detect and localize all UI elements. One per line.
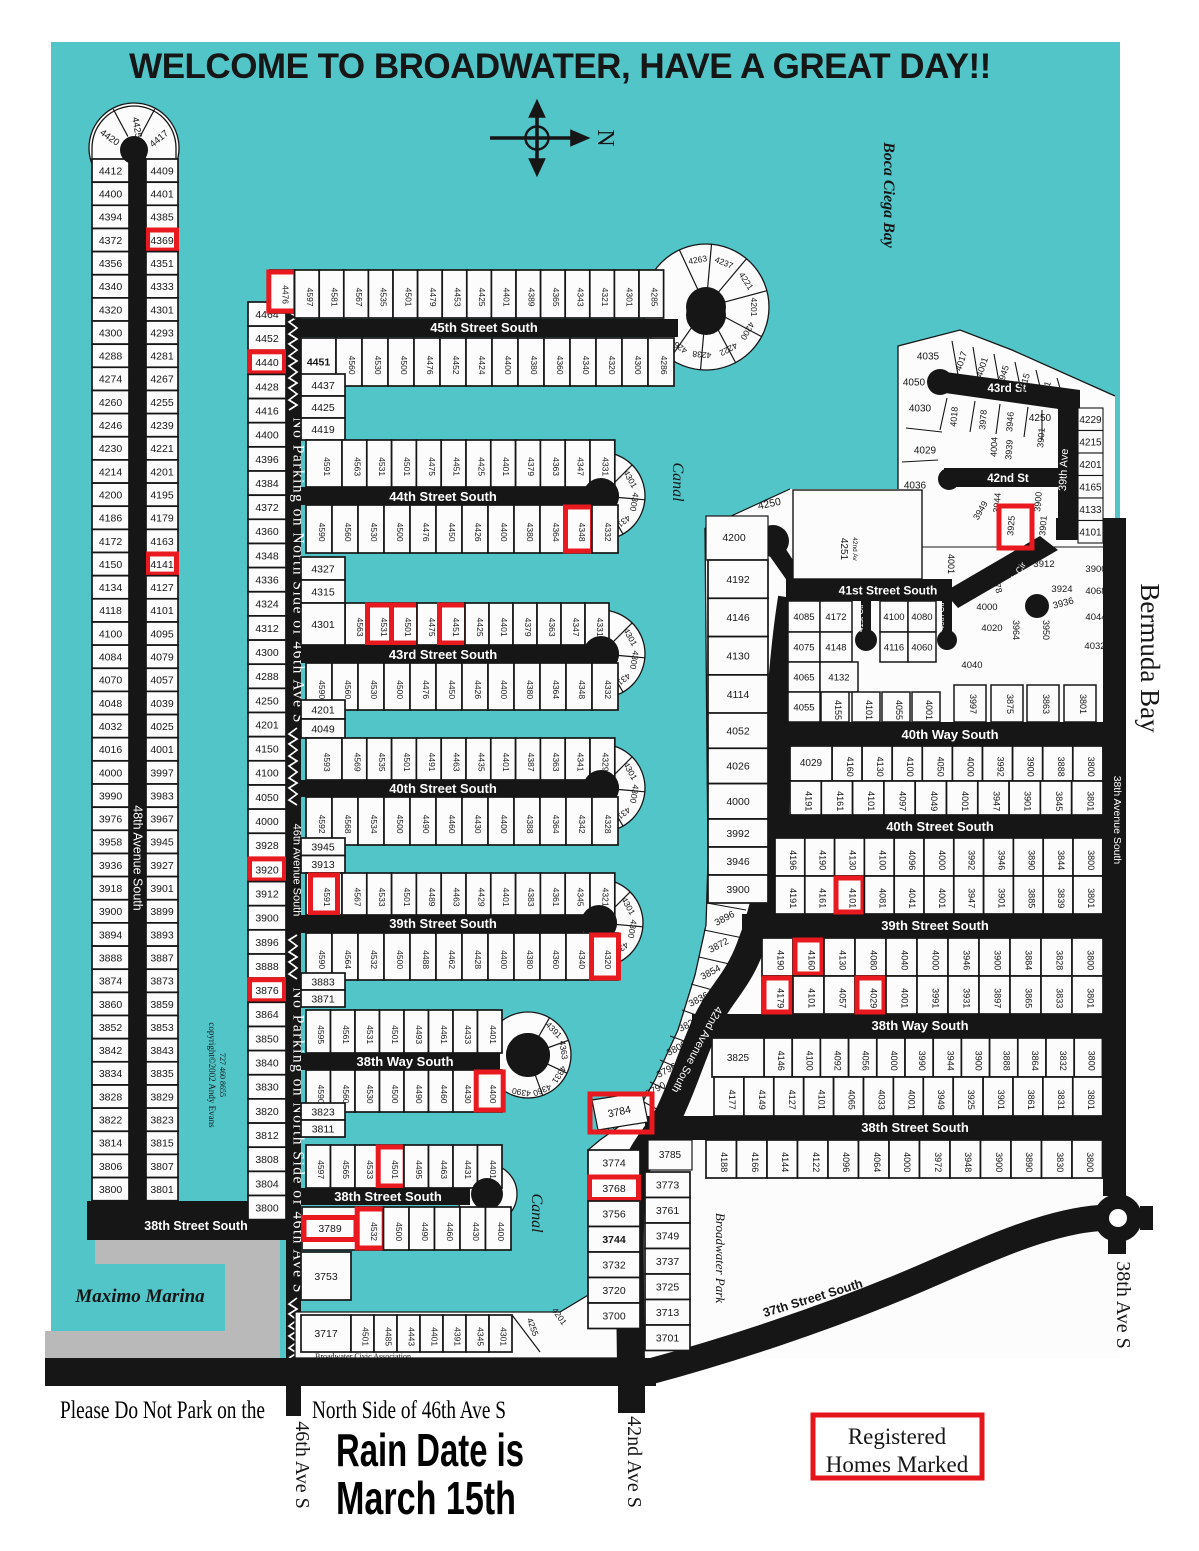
svg-text:3852: 3852 bbox=[99, 1022, 123, 1034]
svg-text:3823: 3823 bbox=[311, 1106, 335, 1118]
svg-text:Canal: Canal bbox=[528, 1193, 545, 1233]
svg-text:4130: 4130 bbox=[726, 651, 750, 663]
svg-text:3900: 3900 bbox=[726, 884, 750, 896]
svg-text:4452: 4452 bbox=[451, 356, 461, 375]
svg-text:4214: 4214 bbox=[99, 466, 123, 478]
svg-text:3992: 3992 bbox=[967, 850, 977, 870]
svg-text:3901: 3901 bbox=[1023, 791, 1033, 811]
svg-text:4476: 4476 bbox=[421, 680, 431, 699]
svg-text:3850: 3850 bbox=[255, 1033, 279, 1045]
svg-text:4425: 4425 bbox=[477, 288, 487, 307]
svg-text:4190: 4190 bbox=[776, 950, 786, 970]
svg-text:4560: 4560 bbox=[343, 523, 353, 542]
svg-text:3823: 3823 bbox=[150, 1115, 174, 1127]
svg-text:4341: 4341 bbox=[576, 753, 586, 772]
svg-text:4049: 4049 bbox=[929, 791, 939, 811]
svg-text:3800: 3800 bbox=[1086, 950, 1096, 970]
svg-text:3900: 3900 bbox=[1026, 757, 1036, 777]
svg-text:3901: 3901 bbox=[1035, 427, 1047, 448]
svg-text:4161: 4161 bbox=[835, 791, 845, 811]
svg-text:4068: 4068 bbox=[1085, 586, 1106, 597]
svg-text:4590: 4590 bbox=[317, 523, 327, 542]
svg-text:4321: 4321 bbox=[600, 888, 610, 907]
svg-text:4246: 4246 bbox=[99, 420, 123, 432]
svg-text:3828: 3828 bbox=[99, 1091, 123, 1103]
svg-text:4342: 4342 bbox=[577, 815, 587, 834]
svg-text:4036: 4036 bbox=[904, 481, 927, 492]
svg-text:3888: 3888 bbox=[99, 953, 123, 965]
svg-text:4450: 4450 bbox=[447, 523, 457, 542]
svg-text:4440: 4440 bbox=[255, 357, 279, 369]
svg-text:3947: 3947 bbox=[967, 888, 977, 908]
svg-text:4425: 4425 bbox=[476, 457, 486, 476]
svg-text:4016: 4016 bbox=[99, 744, 123, 756]
svg-text:3976: 3976 bbox=[99, 814, 123, 826]
svg-text:4238: 4238 bbox=[692, 349, 712, 361]
svg-text:38th Street South: 38th Street South bbox=[861, 1120, 969, 1135]
svg-text:4475: 4475 bbox=[427, 618, 437, 637]
svg-text:3920: 3920 bbox=[255, 864, 279, 876]
svg-text:4535: 4535 bbox=[379, 288, 389, 307]
svg-text:4595: 4595 bbox=[316, 1025, 326, 1044]
svg-text:4100: 4100 bbox=[804, 1051, 814, 1071]
svg-text:4463: 4463 bbox=[452, 753, 462, 772]
svg-text:3801: 3801 bbox=[1078, 694, 1088, 714]
svg-text:4188: 4188 bbox=[719, 1152, 729, 1172]
svg-text:3913: 3913 bbox=[311, 859, 335, 871]
svg-text:4200: 4200 bbox=[722, 532, 746, 544]
svg-text:4592: 4592 bbox=[317, 815, 327, 834]
svg-text:3884: 3884 bbox=[1024, 950, 1034, 970]
svg-text:4020: 4020 bbox=[981, 623, 1002, 634]
svg-text:4530: 4530 bbox=[373, 356, 383, 375]
svg-text:4177: 4177 bbox=[727, 1090, 737, 1110]
svg-text:3946: 3946 bbox=[726, 856, 750, 868]
svg-text:4085: 4085 bbox=[793, 612, 814, 623]
svg-text:3939: 3939 bbox=[1003, 439, 1015, 460]
svg-text:3865: 3865 bbox=[1024, 988, 1034, 1008]
svg-text:Canal: Canal bbox=[669, 462, 686, 502]
svg-text:4443: 4443 bbox=[407, 1327, 417, 1346]
svg-text:4000: 4000 bbox=[255, 816, 279, 828]
svg-text:3801: 3801 bbox=[1086, 1090, 1096, 1110]
svg-text:3737: 3737 bbox=[656, 1256, 680, 1268]
svg-text:4401: 4401 bbox=[501, 457, 511, 476]
svg-text:4400: 4400 bbox=[503, 356, 513, 375]
svg-text:4351: 4351 bbox=[150, 258, 174, 270]
svg-text:3800: 3800 bbox=[1086, 757, 1096, 777]
svg-text:4533: 4533 bbox=[377, 888, 387, 907]
svg-text:3830: 3830 bbox=[255, 1082, 279, 1094]
svg-text:4018: 4018 bbox=[948, 406, 960, 427]
svg-text:3918: 3918 bbox=[99, 883, 123, 895]
svg-text:3945: 3945 bbox=[311, 842, 335, 854]
svg-text:4372: 4372 bbox=[99, 235, 123, 247]
svg-text:4435: 4435 bbox=[476, 753, 486, 772]
svg-text:March 15th: March 15th bbox=[336, 1472, 516, 1524]
svg-text:3897: 3897 bbox=[993, 988, 1003, 1008]
svg-text:4479: 4479 bbox=[428, 288, 438, 307]
svg-text:4288: 4288 bbox=[99, 351, 123, 363]
svg-text:WELCOME TO BROADWATER, HAVE A: WELCOME TO BROADWATER, HAVE A GREAT DAY!… bbox=[129, 47, 991, 86]
svg-text:4347: 4347 bbox=[576, 457, 586, 476]
svg-text:4530: 4530 bbox=[365, 1085, 375, 1104]
svg-text:4285: 4285 bbox=[649, 288, 659, 307]
svg-text:4363: 4363 bbox=[547, 618, 557, 637]
svg-text:3900: 3900 bbox=[99, 906, 123, 918]
svg-text:4200: 4200 bbox=[99, 490, 123, 502]
svg-text:42nd Av: 42nd Av bbox=[851, 537, 858, 561]
svg-text:3801: 3801 bbox=[1086, 888, 1096, 908]
svg-text:4463: 4463 bbox=[439, 1160, 449, 1179]
svg-text:3864: 3864 bbox=[255, 1009, 279, 1021]
svg-text:4057: 4057 bbox=[838, 988, 848, 1008]
svg-text:4274: 4274 bbox=[99, 374, 123, 386]
svg-text:4000: 4000 bbox=[99, 767, 123, 779]
svg-text:4044: 4044 bbox=[1085, 612, 1106, 623]
svg-text:4340: 4340 bbox=[581, 356, 591, 375]
svg-text:4563: 4563 bbox=[355, 618, 365, 637]
svg-text:4560: 4560 bbox=[347, 356, 357, 375]
svg-text:4025: 4025 bbox=[150, 721, 174, 733]
svg-text:3801: 3801 bbox=[150, 1184, 174, 1196]
svg-text:4534: 4534 bbox=[369, 815, 379, 834]
svg-text:4476: 4476 bbox=[425, 356, 435, 375]
svg-text:4000: 4000 bbox=[889, 1051, 899, 1071]
svg-text:4328: 4328 bbox=[603, 815, 613, 834]
svg-text:copyright©2002 Andy Evans: copyright©2002 Andy Evans bbox=[207, 1022, 217, 1128]
svg-text:4380: 4380 bbox=[525, 523, 535, 542]
svg-text:4201: 4201 bbox=[749, 298, 759, 317]
svg-text:3900: 3900 bbox=[255, 913, 279, 925]
svg-text:4379: 4379 bbox=[523, 618, 533, 637]
svg-text:4332: 4332 bbox=[603, 523, 613, 542]
svg-text:4431: 4431 bbox=[463, 1160, 473, 1179]
svg-text:4000: 4000 bbox=[726, 796, 750, 808]
svg-text:4460: 4460 bbox=[447, 815, 457, 834]
svg-text:4101: 4101 bbox=[864, 700, 874, 720]
svg-text:4312: 4312 bbox=[255, 623, 279, 635]
svg-text:4166: 4166 bbox=[750, 1152, 760, 1172]
svg-text:3828: 3828 bbox=[1055, 950, 1065, 970]
svg-text:3958: 3958 bbox=[99, 837, 123, 849]
svg-text:Rain Date is: Rain Date is bbox=[336, 1424, 524, 1476]
svg-text:4080: 4080 bbox=[869, 950, 879, 970]
svg-text:3944: 3944 bbox=[945, 1051, 955, 1071]
svg-text:3800: 3800 bbox=[1086, 1051, 1096, 1071]
svg-text:4401: 4401 bbox=[488, 1025, 498, 1044]
svg-text:4201: 4201 bbox=[255, 719, 279, 731]
svg-text:4251: 4251 bbox=[838, 538, 849, 561]
svg-text:4132: 4132 bbox=[828, 673, 849, 684]
svg-text:4101: 4101 bbox=[1079, 527, 1102, 538]
svg-text:4130: 4130 bbox=[848, 850, 858, 870]
svg-text:3774: 3774 bbox=[602, 1158, 626, 1170]
svg-text:4080: 4080 bbox=[911, 612, 932, 623]
svg-text:4500: 4500 bbox=[395, 815, 405, 834]
svg-text:Bermuda Bay: Bermuda Bay bbox=[1135, 583, 1165, 733]
svg-text:4530: 4530 bbox=[369, 680, 379, 699]
svg-text:4255: 4255 bbox=[150, 397, 174, 409]
svg-text:4150: 4150 bbox=[255, 744, 279, 756]
svg-text:46th Ave S: 46th Ave S bbox=[291, 1421, 313, 1508]
svg-text:4057: 4057 bbox=[150, 675, 174, 687]
svg-text:4050: 4050 bbox=[255, 792, 279, 804]
svg-text:4501: 4501 bbox=[390, 1025, 400, 1044]
svg-text:4597: 4597 bbox=[316, 1160, 326, 1179]
svg-text:4591: 4591 bbox=[322, 888, 332, 907]
svg-text:4401: 4401 bbox=[501, 753, 511, 772]
svg-text:38th Way South: 38th Way South bbox=[871, 1018, 968, 1033]
svg-text:4433: 4433 bbox=[463, 1025, 473, 1044]
svg-text:3800: 3800 bbox=[1085, 1152, 1095, 1172]
svg-text:4160: 4160 bbox=[845, 757, 855, 777]
svg-text:4114: 4114 bbox=[727, 689, 750, 701]
svg-text:3860: 3860 bbox=[99, 999, 123, 1011]
svg-text:4300: 4300 bbox=[99, 327, 123, 339]
svg-text:3900: 3900 bbox=[974, 1051, 984, 1071]
svg-text:4029: 4029 bbox=[869, 988, 879, 1008]
svg-text:3761: 3761 bbox=[656, 1205, 680, 1217]
svg-text:3744: 3744 bbox=[602, 1234, 626, 1246]
svg-text:4000: 4000 bbox=[966, 757, 976, 777]
svg-text:3990: 3990 bbox=[917, 1051, 927, 1071]
svg-text:48th Avenue South: 48th Avenue South bbox=[131, 805, 145, 910]
svg-text:4416: 4416 bbox=[255, 406, 279, 418]
svg-text:3972: 3972 bbox=[933, 1152, 943, 1172]
svg-text:4360: 4360 bbox=[551, 950, 561, 969]
svg-text:4568: 4568 bbox=[343, 815, 353, 834]
svg-text:4041: 4041 bbox=[907, 888, 917, 908]
svg-text:3899: 3899 bbox=[150, 906, 174, 918]
svg-text:4400: 4400 bbox=[499, 523, 509, 542]
svg-text:40th Ctr: 40th Ctr bbox=[937, 601, 946, 630]
svg-text:4380: 4380 bbox=[525, 950, 535, 969]
svg-text:3890: 3890 bbox=[1026, 850, 1036, 870]
svg-text:3901: 3901 bbox=[996, 1090, 1006, 1110]
svg-text:3843: 3843 bbox=[150, 1045, 174, 1057]
svg-text:4301: 4301 bbox=[150, 304, 174, 316]
svg-text:4597: 4597 bbox=[305, 288, 315, 307]
svg-text:4426: 4426 bbox=[473, 680, 483, 699]
svg-text:4130: 4130 bbox=[875, 757, 885, 777]
svg-text:3883: 3883 bbox=[311, 976, 335, 988]
svg-text:4100: 4100 bbox=[255, 768, 279, 780]
svg-text:4064: 4064 bbox=[872, 1152, 882, 1172]
svg-text:4365: 4365 bbox=[551, 288, 561, 307]
svg-text:4401: 4401 bbox=[150, 189, 174, 201]
svg-text:Registered: Registered bbox=[848, 1424, 947, 1449]
svg-text:4049: 4049 bbox=[311, 723, 335, 735]
svg-text:3801: 3801 bbox=[1086, 988, 1096, 1008]
svg-text:4430: 4430 bbox=[463, 1085, 473, 1104]
svg-text:3888: 3888 bbox=[255, 961, 279, 973]
svg-text:4343: 4343 bbox=[576, 288, 586, 307]
svg-text:3888: 3888 bbox=[1002, 1051, 1012, 1071]
svg-text:4501: 4501 bbox=[403, 288, 413, 307]
svg-text:4100: 4100 bbox=[877, 850, 887, 870]
svg-text:4531: 4531 bbox=[365, 1025, 375, 1044]
svg-text:4491: 4491 bbox=[427, 753, 437, 772]
svg-text:4363: 4363 bbox=[551, 457, 561, 476]
svg-text:4146: 4146 bbox=[726, 612, 750, 624]
svg-text:3831: 3831 bbox=[1056, 1090, 1066, 1110]
svg-text:4149: 4149 bbox=[757, 1090, 767, 1110]
svg-text:3901: 3901 bbox=[997, 888, 1007, 908]
svg-text:4490: 4490 bbox=[421, 815, 431, 834]
svg-text:3900: 3900 bbox=[1085, 564, 1106, 575]
svg-text:4070: 4070 bbox=[99, 675, 123, 687]
svg-text:4400: 4400 bbox=[488, 1085, 498, 1104]
svg-text:3861: 3861 bbox=[1026, 1090, 1036, 1110]
svg-text:3773: 3773 bbox=[656, 1180, 680, 1192]
svg-text:Broadwater Park: Broadwater Park bbox=[713, 1213, 728, 1303]
svg-text:4340: 4340 bbox=[577, 950, 587, 969]
svg-text:3978: 3978 bbox=[977, 409, 989, 430]
svg-text:4364: 4364 bbox=[551, 680, 561, 699]
svg-text:4590: 4590 bbox=[317, 680, 327, 699]
svg-text:4450: 4450 bbox=[447, 680, 457, 699]
svg-text:4260: 4260 bbox=[99, 397, 123, 409]
svg-text:4048: 4048 bbox=[99, 698, 123, 710]
svg-text:4412: 4412 bbox=[99, 165, 123, 177]
svg-text:3835: 3835 bbox=[150, 1068, 174, 1080]
svg-text:4501: 4501 bbox=[390, 1160, 400, 1179]
svg-text:4172: 4172 bbox=[825, 612, 846, 623]
svg-text:4301: 4301 bbox=[625, 288, 635, 307]
svg-text:4321: 4321 bbox=[600, 288, 610, 307]
svg-text:4065: 4065 bbox=[847, 1090, 857, 1110]
svg-text:4192: 4192 bbox=[726, 574, 750, 586]
svg-text:4452: 4452 bbox=[255, 333, 279, 345]
svg-text:4286: 4286 bbox=[659, 356, 669, 375]
svg-text:4172: 4172 bbox=[99, 536, 123, 548]
svg-text:4229: 4229 bbox=[1079, 415, 1102, 426]
svg-text:4050: 4050 bbox=[903, 378, 926, 389]
svg-text:4230: 4230 bbox=[99, 443, 123, 455]
svg-text:3964: 3964 bbox=[1011, 620, 1021, 640]
svg-text:3997: 3997 bbox=[150, 767, 174, 779]
svg-text:4056: 4056 bbox=[861, 1051, 871, 1071]
svg-text:4332: 4332 bbox=[603, 680, 613, 699]
svg-text:3863: 3863 bbox=[1041, 694, 1051, 714]
svg-text:4092: 4092 bbox=[833, 1051, 843, 1071]
svg-text:4535: 4535 bbox=[377, 753, 387, 772]
svg-text:4215: 4215 bbox=[1079, 437, 1102, 448]
svg-text:4101: 4101 bbox=[866, 791, 876, 811]
svg-text:3983: 3983 bbox=[150, 790, 174, 802]
svg-text:4396: 4396 bbox=[255, 454, 279, 466]
svg-text:3753: 3753 bbox=[314, 1271, 338, 1283]
svg-text:4001: 4001 bbox=[906, 1090, 916, 1110]
svg-text:42nd Ave S: 42nd Ave S bbox=[623, 1416, 645, 1508]
svg-text:3853: 3853 bbox=[150, 1022, 174, 1034]
svg-text:4590: 4590 bbox=[316, 1085, 326, 1104]
svg-text:4400: 4400 bbox=[499, 950, 509, 969]
svg-text:3822: 3822 bbox=[99, 1115, 123, 1127]
svg-text:4530: 4530 bbox=[369, 523, 379, 542]
svg-text:4030: 4030 bbox=[909, 404, 932, 415]
svg-text:4144: 4144 bbox=[780, 1152, 790, 1172]
svg-text:4320: 4320 bbox=[607, 356, 617, 375]
svg-text:4561: 4561 bbox=[341, 1025, 351, 1044]
svg-text:4101: 4101 bbox=[150, 605, 174, 617]
svg-text:4401: 4401 bbox=[502, 288, 512, 307]
svg-text:3912: 3912 bbox=[1033, 559, 1054, 570]
svg-text:4288: 4288 bbox=[255, 671, 279, 683]
svg-text:4201: 4201 bbox=[1079, 460, 1102, 471]
svg-text:4179: 4179 bbox=[150, 513, 174, 525]
svg-text:3768: 3768 bbox=[602, 1183, 626, 1195]
svg-text:4490: 4490 bbox=[414, 1085, 424, 1104]
svg-text:3701: 3701 bbox=[656, 1333, 680, 1345]
svg-text:4379: 4379 bbox=[526, 457, 536, 476]
svg-text:4281: 4281 bbox=[150, 351, 174, 363]
svg-text:3713: 3713 bbox=[656, 1307, 680, 1319]
svg-text:4400: 4400 bbox=[255, 430, 279, 442]
svg-text:4364: 4364 bbox=[551, 523, 561, 542]
svg-text:4201: 4201 bbox=[150, 466, 174, 478]
svg-text:4029: 4029 bbox=[914, 446, 937, 457]
svg-text:4387: 4387 bbox=[526, 753, 536, 772]
svg-text:4033: 4033 bbox=[876, 1090, 886, 1110]
svg-text:3947: 3947 bbox=[991, 791, 1001, 811]
svg-text:4191: 4191 bbox=[804, 791, 814, 811]
svg-text:4401: 4401 bbox=[430, 1327, 440, 1346]
svg-text:4476: 4476 bbox=[280, 285, 290, 304]
svg-text:4150: 4150 bbox=[99, 559, 123, 571]
svg-text:4384: 4384 bbox=[255, 478, 279, 490]
svg-text:4250: 4250 bbox=[255, 695, 279, 707]
svg-text:41st Ctr: 41st Ctr bbox=[856, 604, 865, 632]
svg-text:3732: 3732 bbox=[602, 1260, 626, 1272]
svg-text:4461: 4461 bbox=[439, 1025, 449, 1044]
svg-text:4300: 4300 bbox=[255, 647, 279, 659]
svg-text:4501: 4501 bbox=[361, 1327, 371, 1346]
svg-text:4394: 4394 bbox=[99, 212, 123, 224]
svg-text:4424: 4424 bbox=[477, 356, 487, 375]
svg-text:4463: 4463 bbox=[452, 888, 462, 907]
svg-text:4250: 4250 bbox=[1029, 413, 1052, 424]
svg-text:44th Street South: 44th Street South bbox=[389, 489, 497, 504]
svg-text:4195: 4195 bbox=[150, 490, 174, 502]
svg-text:3842: 3842 bbox=[99, 1045, 123, 1057]
svg-text:4453: 4453 bbox=[453, 288, 463, 307]
svg-text:4190: 4190 bbox=[818, 850, 828, 870]
svg-text:3946: 3946 bbox=[962, 950, 972, 970]
svg-text:4348: 4348 bbox=[255, 550, 279, 562]
svg-text:4340: 4340 bbox=[99, 281, 123, 293]
svg-text:4001: 4001 bbox=[900, 988, 910, 1008]
svg-text:4348: 4348 bbox=[577, 680, 587, 699]
svg-text:4345: 4345 bbox=[476, 1327, 486, 1346]
svg-text:4425: 4425 bbox=[475, 618, 485, 637]
svg-text:4428: 4428 bbox=[473, 950, 483, 969]
svg-text:4361: 4361 bbox=[551, 888, 561, 907]
svg-text:4400: 4400 bbox=[496, 1222, 506, 1241]
svg-text:3901: 3901 bbox=[1037, 515, 1049, 536]
svg-text:3873: 3873 bbox=[150, 976, 174, 988]
svg-text:Homes Marked: Homes Marked bbox=[826, 1452, 969, 1477]
svg-text:4347: 4347 bbox=[571, 618, 581, 637]
svg-text:4360: 4360 bbox=[555, 356, 565, 375]
svg-text:40th Street South: 40th Street South bbox=[389, 781, 497, 796]
svg-text:4201: 4201 bbox=[311, 704, 335, 716]
svg-text:4500: 4500 bbox=[395, 680, 405, 699]
svg-text:3789: 3789 bbox=[318, 1223, 342, 1235]
svg-text:4383: 4383 bbox=[526, 888, 536, 907]
svg-text:4146: 4146 bbox=[776, 1051, 786, 1071]
